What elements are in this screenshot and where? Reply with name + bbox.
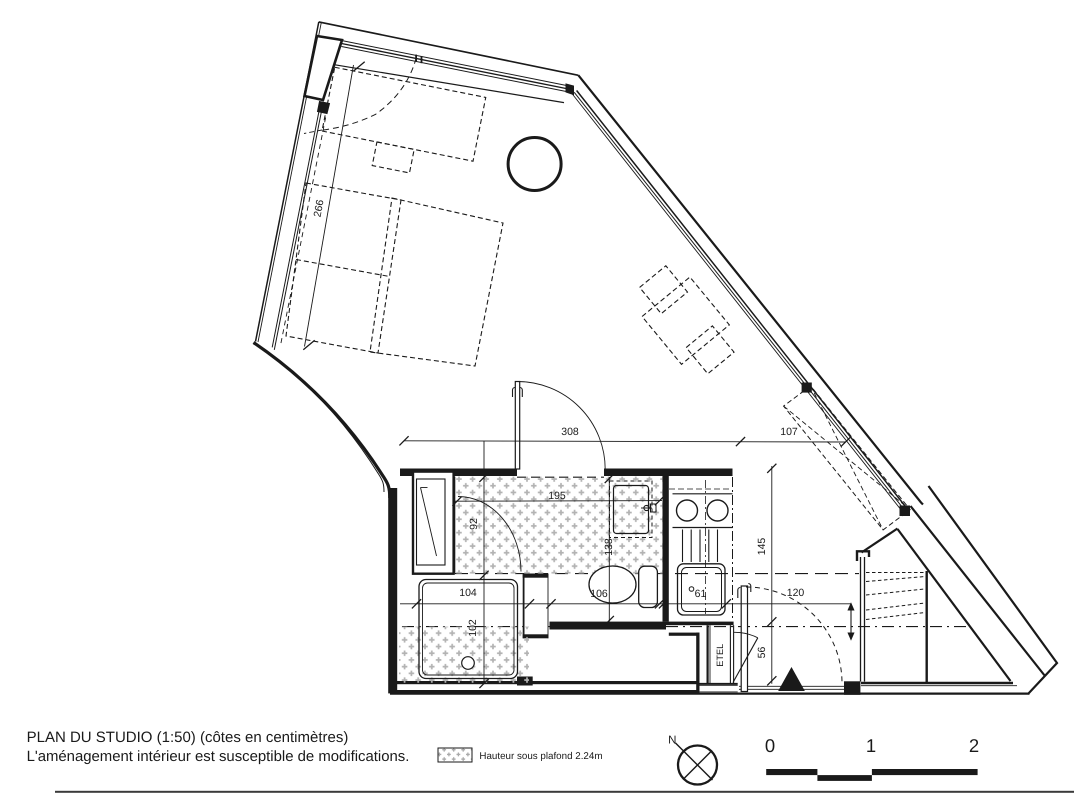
svg-text:308: 308 <box>561 426 579 438</box>
svg-text:1: 1 <box>866 735 876 756</box>
svg-text:120: 120 <box>787 587 805 599</box>
svg-text:Hauteur sous plafond 2.24m: Hauteur sous plafond 2.24m <box>479 751 602 762</box>
svg-text:92: 92 <box>468 518 480 530</box>
svg-text:145: 145 <box>756 538 768 556</box>
svg-text:L'aménagement intérieur est su: L'aménagement intérieur est susceptible … <box>27 749 410 765</box>
svg-text:138: 138 <box>603 538 615 556</box>
svg-text:106: 106 <box>590 588 608 600</box>
svg-text:PLAN DU STUDIO (1:50) (côtes e: PLAN DU STUDIO (1:50) (côtes en centimèt… <box>27 729 349 746</box>
svg-text:ETEL: ETEL <box>715 644 725 667</box>
svg-text:104: 104 <box>459 587 477 599</box>
svg-text:0: 0 <box>765 735 775 756</box>
svg-text:102: 102 <box>467 619 479 637</box>
svg-text:N: N <box>668 735 676 747</box>
svg-text:61: 61 <box>695 588 707 600</box>
svg-text:2: 2 <box>969 735 979 756</box>
svg-text:107: 107 <box>780 426 798 438</box>
svg-text:195: 195 <box>548 490 566 502</box>
svg-text:56: 56 <box>756 647 768 659</box>
